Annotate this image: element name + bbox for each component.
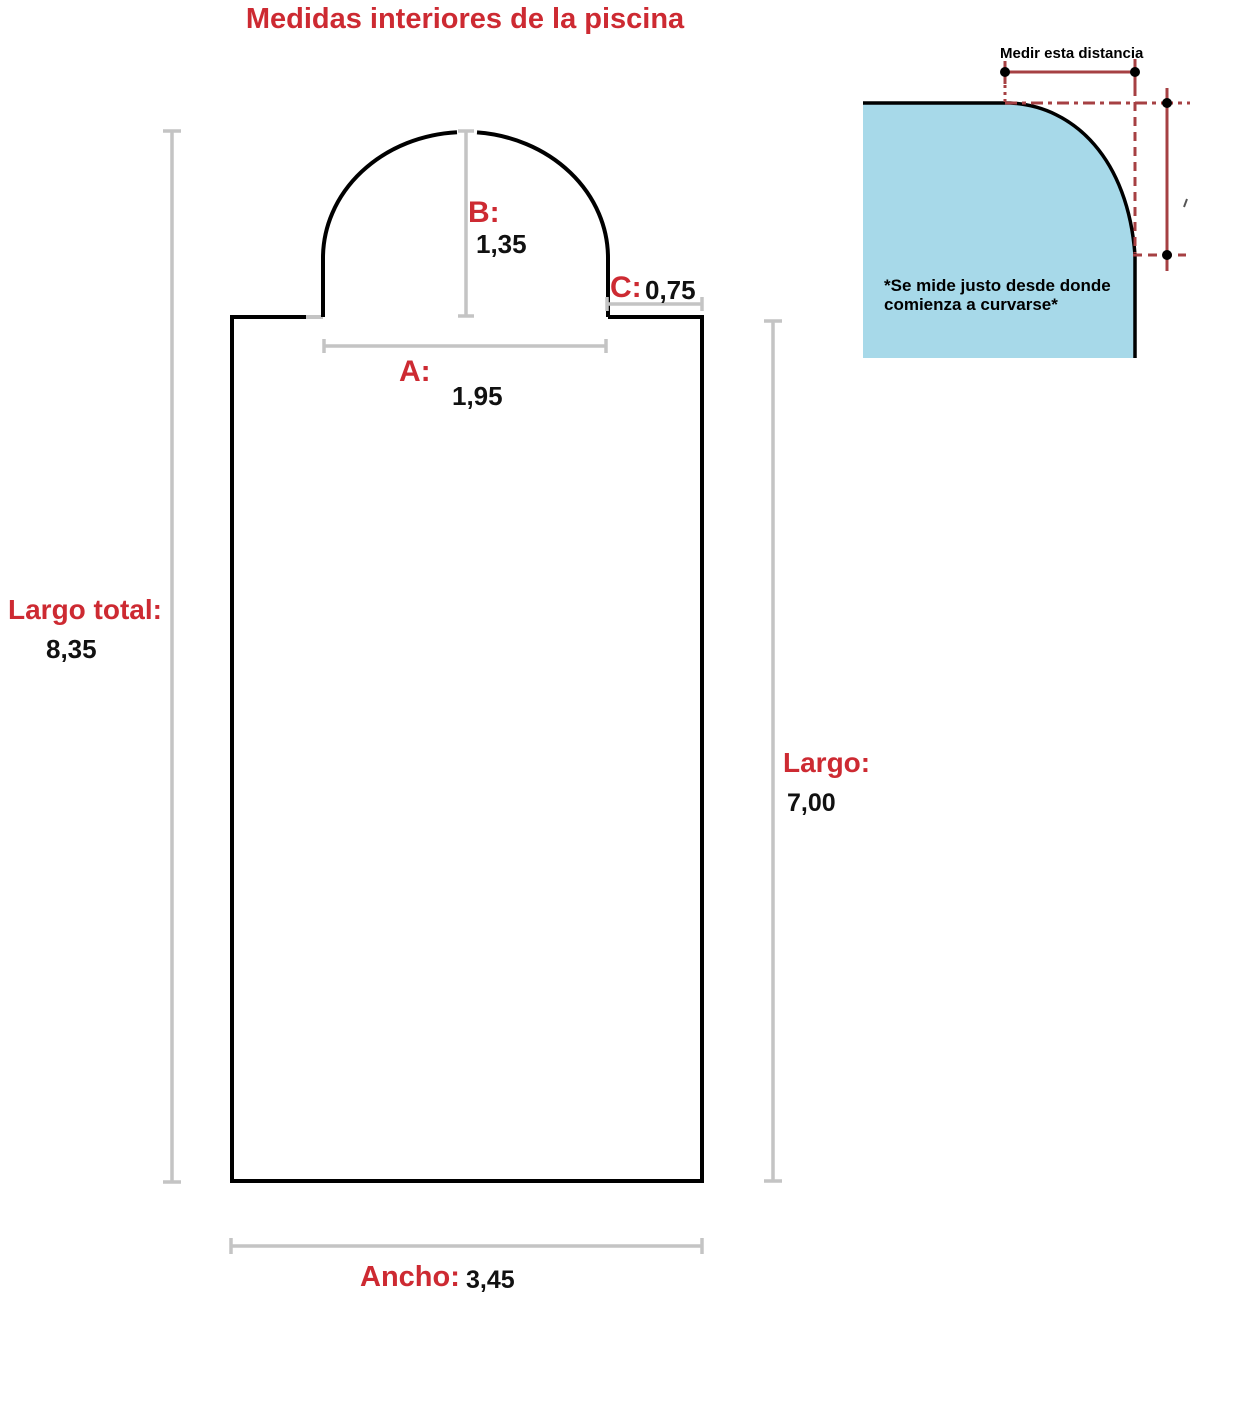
measure-line-largo <box>764 321 782 1181</box>
diagram-canvas <box>0 0 1235 1420</box>
pool-dome-arc-left <box>323 132 457 317</box>
dim-a-value: 1,95 <box>452 381 503 412</box>
largo-value: 7,00 <box>787 789 836 818</box>
inset-measure-label: Medir esta distancia <box>1000 45 1140 62</box>
largo-total-label: Largo total: <box>8 594 162 626</box>
stray-tick-mark <box>1184 199 1187 207</box>
inset-note: *Se mide justo desde donde comienza a cu… <box>884 276 1111 314</box>
measure-line-ancho <box>231 1238 702 1254</box>
diagram-title: Medidas interiores de la piscina <box>233 3 697 36</box>
pool-rectangle-outline <box>232 317 702 1181</box>
inset-corner-fill <box>863 103 1135 358</box>
dim-b-label: B: <box>468 196 500 230</box>
inset-note-line1: *Se mide justo desde donde <box>884 276 1111 295</box>
ancho-value: 3,45 <box>466 1266 515 1295</box>
largo-label: Largo: <box>783 747 870 779</box>
pool-measurement-diagram: Medidas interiores de la piscina B: 1,35… <box>0 0 1235 1420</box>
inset-note-line2: comienza a curvarse* <box>884 295 1111 314</box>
largo-total-value: 8,35 <box>46 634 97 665</box>
measure-line-a <box>324 339 606 353</box>
ancho-label: Ancho: <box>360 1261 460 1294</box>
measure-line-largo-total <box>163 131 181 1182</box>
dim-c-value: 0,75 <box>645 275 696 306</box>
dim-b-value: 1,35 <box>476 229 527 260</box>
dim-a-label: A: <box>399 355 431 389</box>
dim-c-label: C: <box>610 271 642 305</box>
